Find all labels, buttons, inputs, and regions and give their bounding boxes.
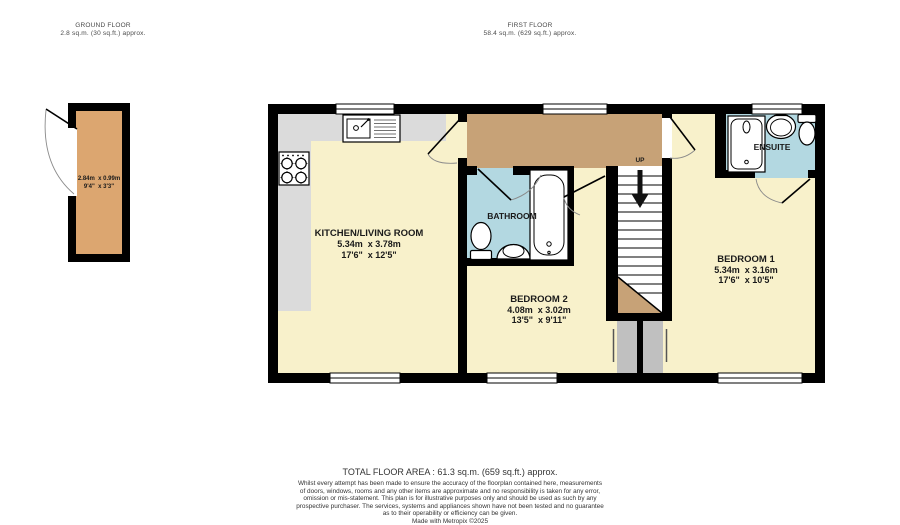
disclaimer-line: as to their operability or efficiency ca… (285, 510, 615, 518)
bedroom2-dims-m: 4.08m x 3.02m (507, 305, 571, 315)
store-door-opening (67, 128, 77, 196)
cooker-hob (279, 152, 309, 185)
bedroom1-dims-m: 5.34m x 3.16m (714, 265, 778, 275)
disclaimer-line: of doors, windows, rooms and any other i… (285, 488, 615, 496)
kitchen-living-room-dims-ft: 17'6" x 12'5" (341, 250, 396, 260)
cupboard-left (617, 321, 637, 373)
cupboard-right (643, 321, 663, 373)
bedroom1-label: BEDROOM 1 (717, 254, 775, 265)
ensuite-label: ENSUITE (754, 142, 791, 152)
cupboard-divider-wall (637, 321, 643, 373)
first-floor-plan: KITCHEN/LIVING ROOM 5.34m x 3.78m 17'6" … (268, 104, 825, 383)
floorplan-canvas: 2.84m x 0.99m 9'4" x 3'3" (0, 0, 900, 525)
bedroom2-dims-ft: 13'5" x 9'11" (512, 315, 567, 325)
under-stairs-cupboards (614, 321, 667, 373)
window (752, 104, 802, 114)
bathroom-label: BATHROOM (487, 211, 536, 221)
toilet-ensuite (798, 115, 816, 146)
window (487, 373, 557, 383)
total-floor-area: TOTAL FLOOR AREA : 61.3 sq.m. (659 sq.ft… (285, 467, 615, 477)
toilet (471, 223, 492, 260)
kitchen-sink (343, 115, 400, 142)
window (718, 373, 802, 383)
disclaimer-line: omission or mis-statement. This plan is … (285, 495, 615, 503)
store-dims-m: 2.84m x 0.99m (78, 176, 120, 182)
landing-floor (467, 114, 663, 168)
store-dims-ft: 9'4" x 3'3" (84, 184, 114, 190)
bedroom1-door-opening (662, 118, 672, 158)
floorplan-page: GROUND FLOOR 2.8 sq.m. (30 sq.ft.) appro… (0, 0, 900, 525)
disclaimer: Whilst every attempt has been made to en… (285, 480, 615, 525)
wash-basin-ensuite (767, 115, 796, 139)
disclaimer-line: prospective purchaser. The services, sys… (285, 503, 615, 511)
bedroom1-dims-ft: 17'6" x 10'5" (718, 275, 773, 285)
stairs-up-label: UP (635, 157, 645, 164)
window (543, 104, 607, 114)
store-floor (76, 111, 122, 254)
staircase (618, 166, 662, 313)
window (336, 104, 394, 114)
kitchen-living-room-dims-m: 5.34m x 3.78m (337, 239, 401, 249)
window (330, 373, 400, 383)
stairs-down-arrow-shaft (638, 170, 643, 195)
metropix-credit: Made with Metropix ©2025 (285, 518, 615, 525)
disclaimer-line: Whilst every attempt has been made to en… (285, 480, 615, 488)
bedroom2-label: BEDROOM 2 (510, 294, 568, 305)
ground-floor-plan: 2.84m x 0.99m 9'4" x 3'3" (45, 103, 130, 262)
kitchen-living-room-label: KITCHEN/LIVING ROOM (315, 228, 424, 239)
